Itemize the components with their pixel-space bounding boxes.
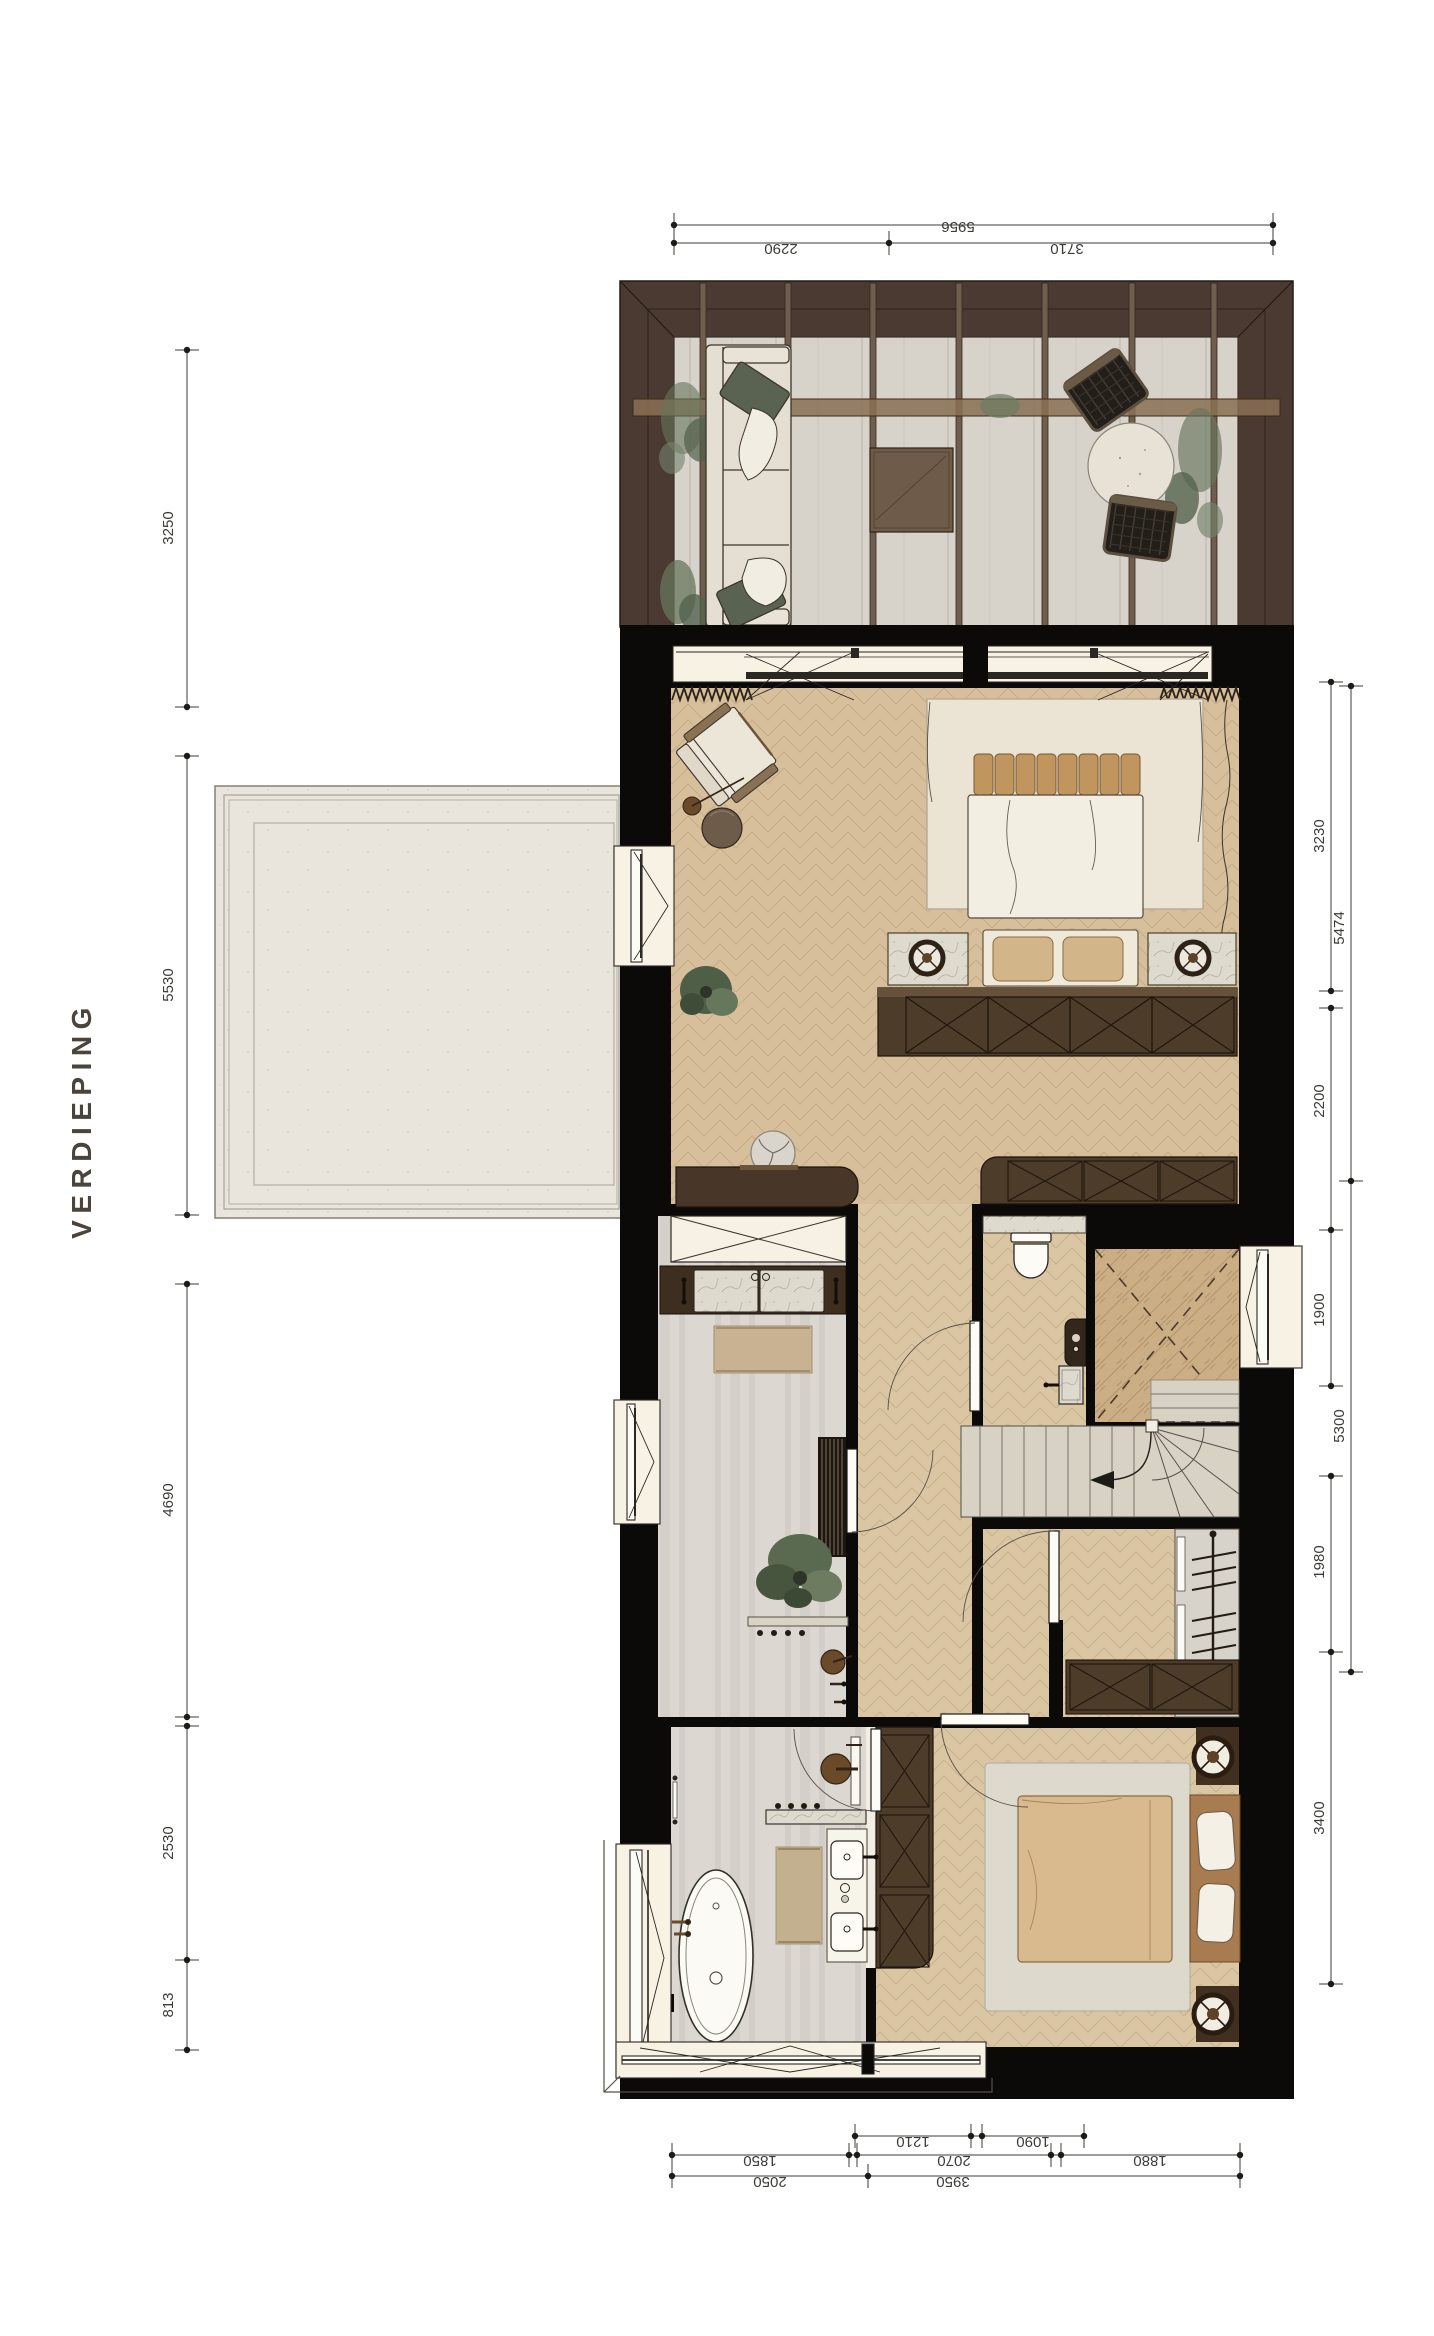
svg-text:5530: 5530 — [160, 968, 177, 1001]
svg-text:5474: 5474 — [1331, 911, 1348, 944]
svg-text:2290: 2290 — [764, 240, 797, 257]
svg-text:3250: 3250 — [160, 511, 177, 544]
svg-text:1850: 1850 — [743, 2152, 776, 2169]
svg-text:1880: 1880 — [1133, 2152, 1166, 2169]
svg-text:5956: 5956 — [941, 218, 974, 235]
svg-text:1900: 1900 — [1311, 1293, 1328, 1326]
svg-text:4690: 4690 — [160, 1483, 177, 1516]
svg-text:1090: 1090 — [1016, 2133, 1049, 2150]
svg-text:813: 813 — [160, 1992, 177, 2017]
svg-text:2070: 2070 — [937, 2152, 970, 2169]
svg-text:2530: 2530 — [160, 1826, 177, 1859]
svg-text:3950: 3950 — [936, 2173, 969, 2190]
svg-text:2200: 2200 — [1311, 1084, 1328, 1117]
svg-text:3400: 3400 — [1311, 1801, 1328, 1834]
svg-text:2050: 2050 — [753, 2173, 786, 2190]
svg-text:3710: 3710 — [1050, 240, 1083, 257]
svg-text:3230: 3230 — [1311, 819, 1328, 852]
svg-text:VERDIEPING: VERDIEPING — [66, 1001, 97, 1239]
svg-text:1210: 1210 — [896, 2133, 929, 2150]
svg-text:5300: 5300 — [1331, 1409, 1348, 1442]
svg-text:1980: 1980 — [1311, 1545, 1328, 1578]
